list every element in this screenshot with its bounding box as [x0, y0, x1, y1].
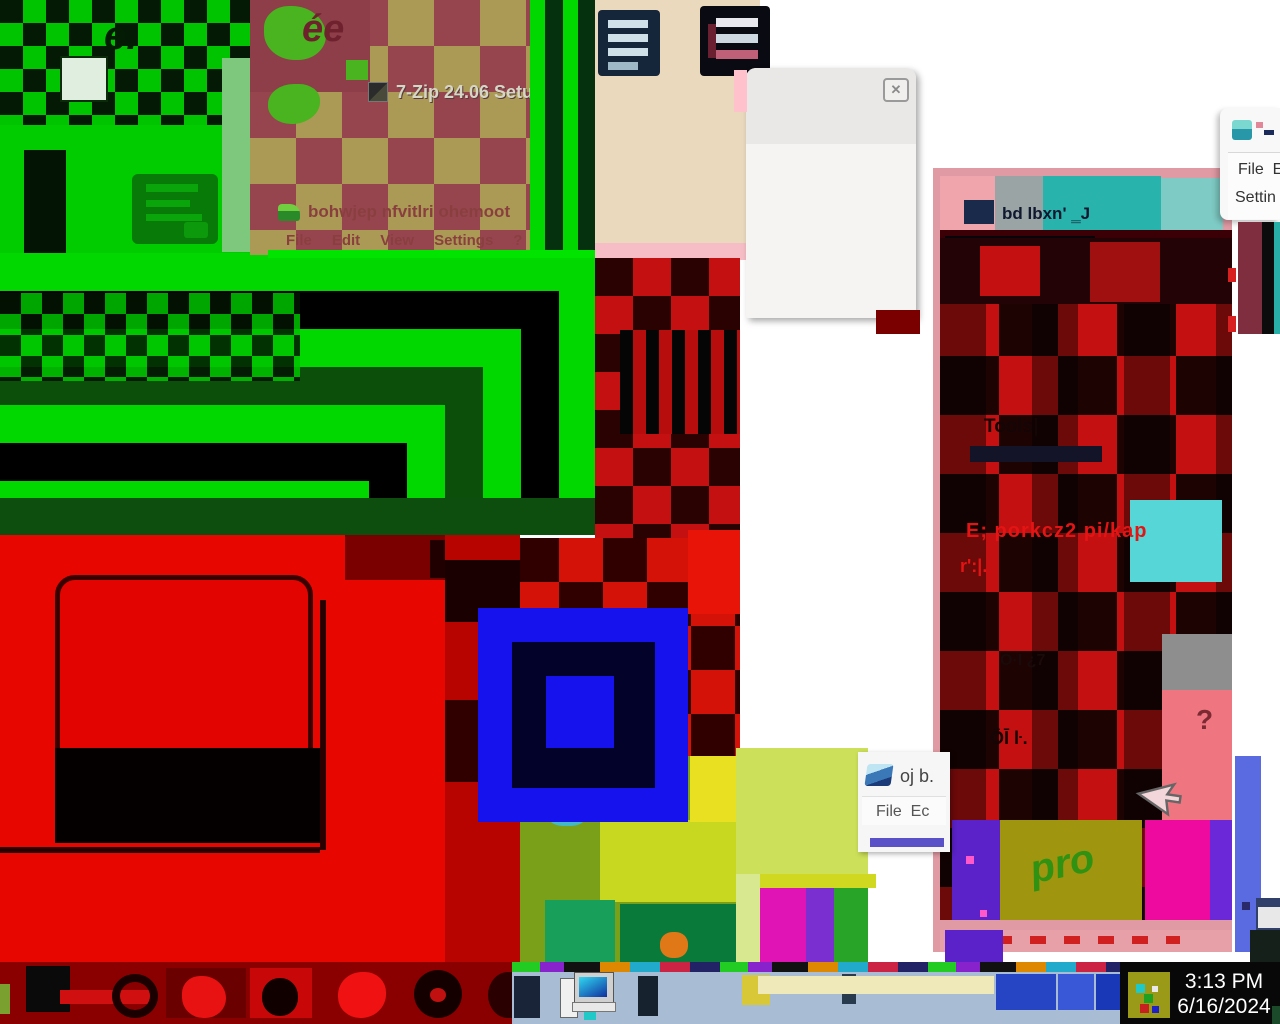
mini-window-menubar: File Ec [862, 796, 946, 825]
glitch-block [876, 310, 920, 334]
glitch-blob [660, 932, 688, 958]
glitch-blob [268, 84, 320, 124]
glitch-block [514, 976, 540, 1018]
taskbar-button[interactable] [996, 974, 1056, 1010]
glitch-text-tools: Tools| [984, 416, 1039, 438]
glitch-block [55, 748, 320, 843]
glitch-frames [0, 253, 597, 535]
glitch-block [638, 976, 658, 1016]
glitch-glyph: ée [302, 8, 344, 51]
glitch-block [0, 984, 10, 1014]
glitch-block [620, 330, 740, 434]
glitch-block [1228, 268, 1236, 282]
glitch-block [268, 250, 598, 258]
glitch-block [996, 936, 1180, 944]
glitch-block [690, 756, 740, 822]
glitch-block [760, 874, 876, 888]
glitch-block [600, 820, 740, 902]
glitch-text-path: E; porkcz2 pi/kap [966, 520, 1148, 543]
taskbar-button[interactable] [1096, 974, 1120, 1010]
glitch-block [980, 246, 1040, 296]
glitch-circle-icon [112, 974, 158, 1018]
glitch-question-mark: ? [1196, 704, 1213, 736]
glitch-block [579, 977, 607, 997]
glitch-block [346, 60, 368, 80]
archive-app-icon [278, 204, 300, 221]
glitch-block [1161, 178, 1223, 234]
glitch-block [546, 676, 614, 748]
glitch-block [55, 575, 313, 775]
glitch-app-icon [964, 200, 994, 224]
glitch-block [222, 58, 250, 252]
glitch-block [1136, 984, 1145, 993]
glitch-block [1144, 994, 1153, 1003]
list-icon[interactable] [598, 10, 660, 76]
glitch-block [834, 888, 868, 970]
glitch-circle-icon [414, 970, 462, 1018]
glitch-block [708, 24, 716, 58]
glitch-text-pro: pro [1026, 836, 1098, 893]
glitch-window-titlebar[interactable]: bd lbxn' ‗J [940, 176, 1232, 234]
glitch-block [688, 530, 740, 614]
glitch-block [980, 910, 987, 917]
glitch-block [1228, 316, 1236, 332]
glitch-block [0, 847, 320, 853]
glitch-block [146, 214, 202, 221]
clock-date: 6/16/2024 [1177, 994, 1270, 1019]
tray-icon[interactable] [1128, 972, 1170, 1018]
system-tray: 3:13 PM 6/16/2024 [1120, 962, 1280, 1024]
glitch-block [608, 62, 638, 70]
glitch-block [430, 988, 446, 1002]
glitch-text-frag1: r':|. [960, 556, 987, 577]
glitch-block [0, 498, 597, 535]
document-icon[interactable] [132, 174, 218, 244]
mini-window: oj b. File Ec [858, 752, 950, 852]
glitch-block [758, 976, 994, 994]
glitch-block [1090, 242, 1160, 302]
glitch-block [1262, 222, 1274, 334]
glitch-block [512, 642, 655, 788]
glitch-block [545, 900, 615, 962]
glitch-block [966, 856, 974, 864]
menu-view[interactable]: View [380, 232, 414, 249]
glitch-block [1256, 122, 1263, 128]
glitch-block [870, 838, 944, 847]
glitch-block [1272, 1006, 1280, 1024]
archive-title: bohwjep nfvitlri ohemoot [308, 202, 510, 222]
glitch-block [1152, 1006, 1159, 1013]
glitch-block [146, 200, 190, 207]
glitch-block [572, 1002, 616, 1012]
glitch-blob-icon [262, 978, 298, 1016]
menu-file[interactable]: File [286, 232, 312, 249]
glitch-icon-row [0, 962, 520, 1024]
list-icon[interactable] [700, 6, 770, 76]
archive-menubar: File Edit View Settings ? [286, 232, 522, 249]
glitch-block [1162, 634, 1232, 692]
glitch-block [320, 600, 326, 850]
glitch-block [736, 874, 760, 970]
glitch-blob-icon [182, 976, 226, 1018]
partial-window-menu: File E Settin [1228, 152, 1280, 219]
glitch-block [952, 820, 1000, 920]
glitch-block [608, 20, 648, 28]
menu-help[interactable]: ? [513, 232, 522, 249]
glitch-block [1238, 222, 1262, 334]
dialog-close-button[interactable]: ✕ [883, 78, 909, 102]
blank-dialog: ✕ [746, 68, 916, 318]
mini-window-app-icon [864, 764, 893, 786]
partial-menu-settings[interactable]: Settin [1235, 189, 1276, 207]
glitch-block [24, 150, 66, 255]
glitch-block [806, 888, 834, 970]
7zip-icon [368, 82, 388, 102]
glitch-block [608, 34, 648, 42]
glitch-block [26, 966, 70, 1012]
glitch-block [1210, 820, 1232, 920]
glitch-block [146, 184, 198, 192]
glitch-block [0, 293, 300, 381]
taskbar-button[interactable] [1058, 974, 1094, 1010]
glitch-block [716, 50, 758, 59]
glitch-text-frag2: O·I ¿7 [1000, 652, 1045, 670]
archive-titlebar[interactable]: bohwjep nfvitlri ohemoot [278, 200, 510, 224]
mini-menu-file[interactable]: File Ec [876, 803, 929, 821]
mini-window-title: oj b. [900, 766, 934, 787]
glitch-blob-icon [338, 972, 386, 1018]
glitch-block: pro ¡·¦=¡ · [1000, 820, 1142, 920]
glitch-block [1145, 820, 1213, 920]
glitch-blue-square [478, 608, 688, 822]
glitch-block [1140, 1004, 1149, 1013]
mini-glitch-icon [1256, 898, 1280, 930]
glitch-block [736, 748, 868, 874]
setup-title: 7-Zip 24.06 Setup [396, 82, 544, 103]
taskbar: 3:13 PM 6/16/2024 [512, 962, 1280, 1024]
clock-time: 3:13 PM [1185, 969, 1263, 994]
desktop: e. ée 7-Zip 24.06 Setup bohw [0, 0, 1280, 1024]
glitch-block [760, 888, 806, 970]
my-computer-icon[interactable] [558, 970, 614, 1022]
glitch-window-content: Tools| E; porkcz2 pi/kap r':|. O·I ¿7 ? … [940, 238, 1232, 920]
glitch-block [716, 34, 758, 43]
taskbar-clock[interactable]: 3:13 PM 6/16/2024 [1170, 968, 1278, 1020]
glitch-main-window: bd lbxn' ‗J Tools| E; porkcz2 pi/kap r':… [933, 168, 1232, 952]
glitch-block [608, 48, 648, 56]
partial-window: File E Settin [1220, 108, 1280, 220]
menu-settings[interactable]: Settings [434, 232, 493, 249]
glitch-block [1264, 130, 1274, 135]
glitch-block [0, 535, 520, 965]
partial-window-app-icon [1232, 120, 1252, 140]
menu-edit[interactable]: Edit [332, 232, 360, 249]
glitch-block [184, 222, 208, 238]
glitch-block [1258, 900, 1280, 907]
setup-titlebar[interactable]: 7-Zip 24.06 Setup [368, 80, 544, 104]
glitch-block [1274, 222, 1280, 334]
glitch-block [1152, 986, 1158, 992]
glitch-block [734, 70, 747, 112]
glitch-block [530, 0, 597, 255]
partial-menu-file[interactable]: File E [1238, 161, 1280, 179]
glitch-block [716, 18, 758, 27]
glitch-block [1242, 902, 1250, 910]
glitch-glyph: e. [104, 14, 137, 59]
glitch-block [584, 1012, 596, 1020]
glitch-text-frag3: ŌĪ ŀ. [990, 728, 1028, 749]
glitch-block [60, 56, 108, 102]
glitch-block [970, 446, 1102, 462]
glitch-title-text: bd lbxn' ‗J [1002, 204, 1090, 224]
